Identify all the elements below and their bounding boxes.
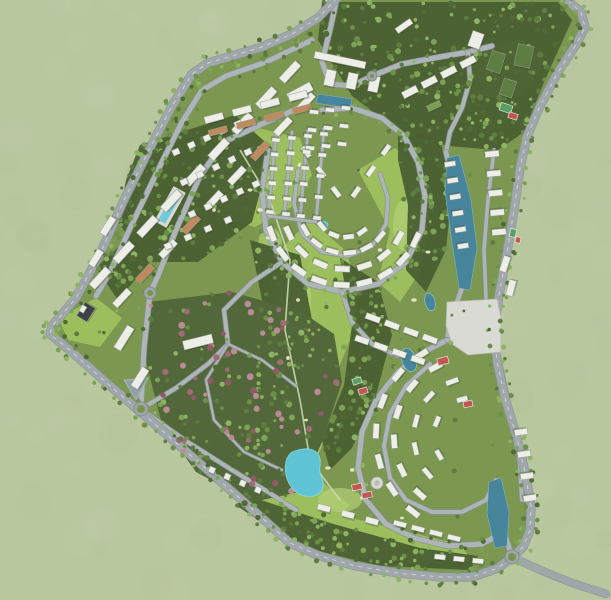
masterplan-svg bbox=[0, 0, 611, 600]
masterplan-aerial-view bbox=[0, 0, 611, 600]
sports-court bbox=[509, 228, 517, 237]
sports-court bbox=[515, 237, 521, 244]
